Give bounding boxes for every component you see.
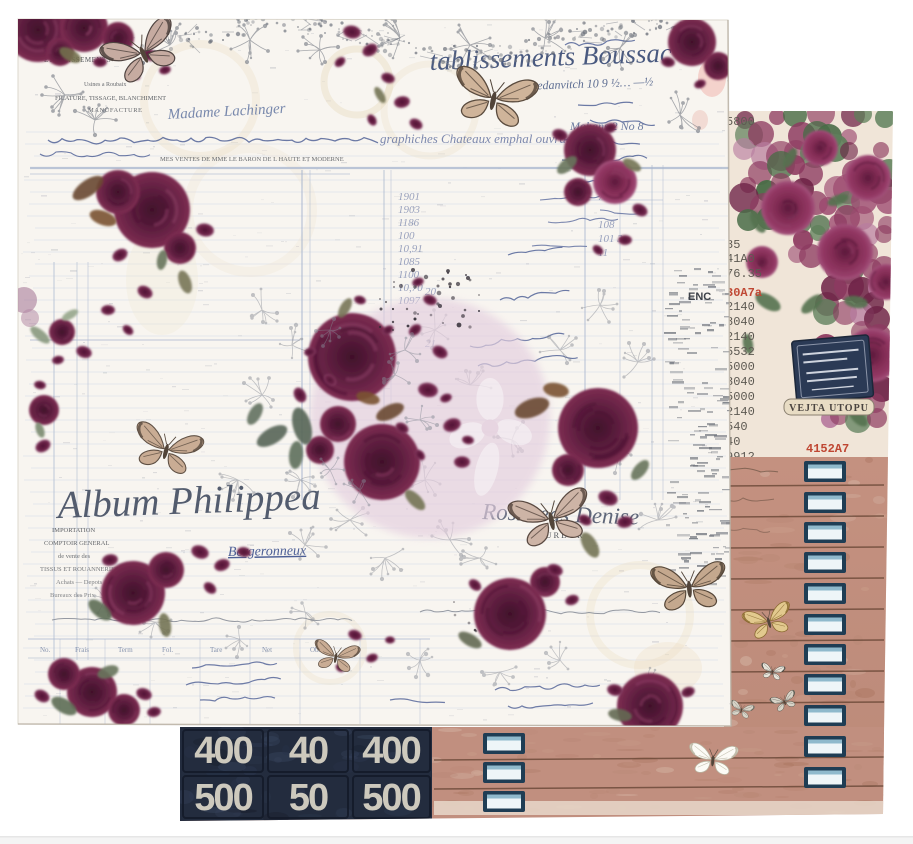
svg-text:No.: No.	[40, 646, 51, 654]
svg-text:COMPTOIR GENERAL: COMPTOIR GENERAL	[44, 540, 109, 547]
svg-text:30A7a: 30A7a	[726, 286, 762, 300]
svg-text:Net: Net	[262, 646, 272, 654]
svg-text:VEJTA UTOPU: VEJTA UTOPU	[789, 403, 869, 414]
svg-text:Fol.: Fol.	[162, 646, 173, 654]
svg-text:1186: 1186	[398, 217, 420, 229]
svg-text:108: 108	[598, 219, 615, 231]
svg-text:1903: 1903	[398, 204, 421, 216]
svg-text:Bureaux des Prix: Bureaux des Prix	[50, 592, 96, 599]
svg-text:500: 500	[362, 777, 420, 819]
svg-text:ENC: ENC	[688, 291, 711, 303]
svg-text:Tare: Tare	[210, 646, 222, 654]
svg-text:50: 50	[289, 777, 328, 819]
svg-text:de vente des: de vente des	[58, 553, 91, 560]
svg-text:TISSUS ET ROUANNERIES: TISSUS ET ROUANNERIES	[40, 566, 119, 573]
svg-text:MES VENTES DE MME LE BARON DE: MES VENTES DE MME LE BARON DE L HAUTE ET…	[160, 156, 344, 163]
svg-text:40: 40	[289, 730, 328, 772]
svg-text:500: 500	[194, 777, 252, 819]
svg-text:100: 100	[398, 230, 415, 242]
svg-text:400: 400	[362, 730, 420, 772]
svg-text:10,91: 10,91	[398, 243, 423, 255]
svg-text:Term: Term	[118, 646, 133, 654]
svg-text:IMPORTATION: IMPORTATION	[52, 527, 95, 534]
svg-text:5800: 5800	[726, 115, 755, 129]
svg-text:Frais: Frais	[75, 646, 89, 654]
svg-text:2140: 2140	[726, 300, 755, 314]
svg-text:FILATURE, TISSAGE, BLANCHIMENT: FILATURE, TISSAGE, BLANCHIMENT	[55, 95, 166, 102]
svg-text:graphiches Chateaux emphal ouv: graphiches Chateaux emphal ouvrage	[380, 131, 578, 146]
svg-text:5000: 5000	[726, 360, 755, 374]
svg-text:Usines a Roubaix: Usines a Roubaix	[84, 82, 126, 88]
svg-text:5532: 5532	[726, 345, 755, 359]
svg-text:1085: 1085	[398, 256, 421, 268]
svg-text:1901: 1901	[398, 191, 420, 203]
svg-text:76.35: 76.35	[726, 267, 762, 281]
svg-text:8040: 8040	[726, 315, 755, 329]
svg-text:400: 400	[194, 730, 252, 772]
svg-text:41A0: 41A0	[726, 252, 755, 266]
svg-text:4152A7: 4152A7	[806, 442, 849, 456]
svg-text:Achats — Depots: Achats — Depots	[56, 579, 103, 586]
svg-text:2140: 2140	[726, 330, 755, 344]
